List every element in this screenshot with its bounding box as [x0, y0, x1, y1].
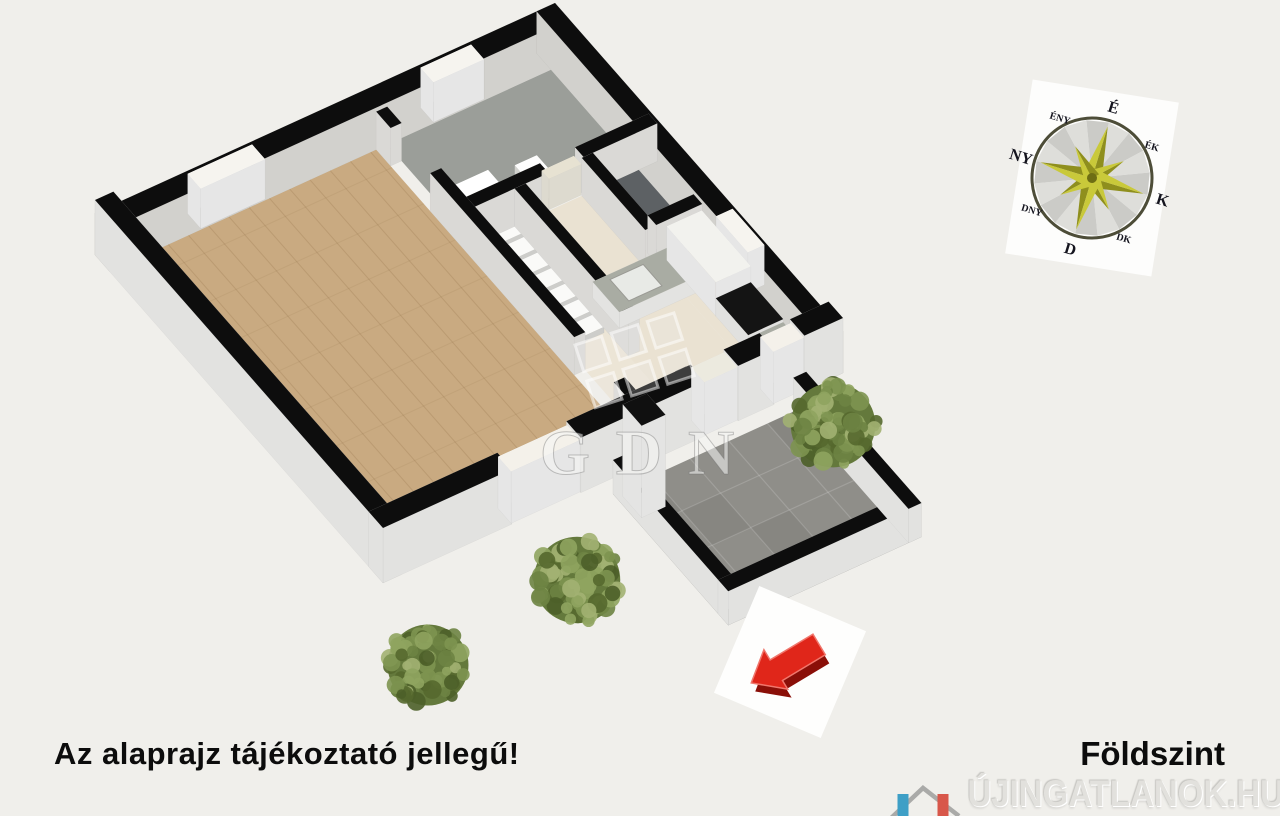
gdn-watermark-text: GDN: [540, 417, 760, 488]
ujingatlanok-logo-icon: [883, 776, 971, 816]
floor-plan-3d-render: GDNÉÉKKDKDDNYNYÉNY: [0, 0, 1280, 816]
bush: [529, 533, 626, 627]
bush: [381, 624, 470, 711]
disclaimer-text: Az alaprajz tájékoztató jellegű!: [54, 736, 520, 772]
floorplan-page: GDNÉÉKKDKDDNYNYÉNY Az alaprajz tájékozta…: [0, 0, 1280, 816]
watermark-ujingatlanok-text: ÚJINGATLANOK.HU: [967, 772, 1280, 815]
watermark-ujingatlanok: ÚJINGATLANOK.HU: [891, 764, 1280, 816]
compass-rose: ÉÉKKDKDDNYNYÉNY: [982, 70, 1197, 286]
